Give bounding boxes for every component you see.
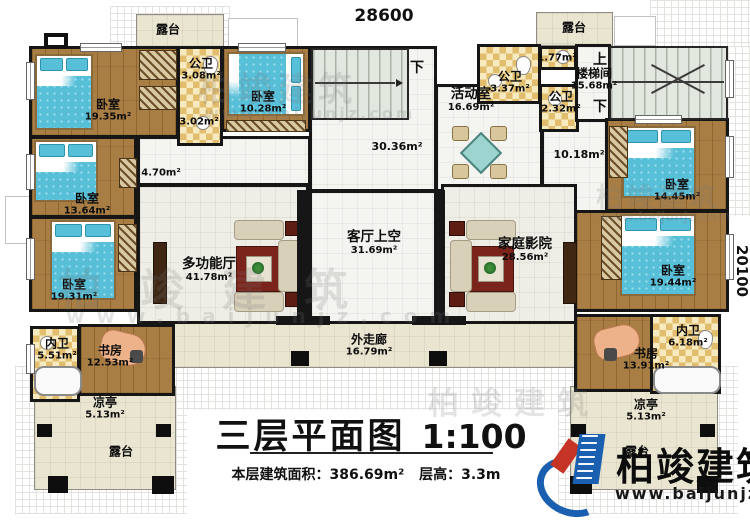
pillow-icon — [66, 58, 89, 71]
label-hall-3036: 30.36m² — [371, 141, 422, 153]
pillow-icon — [660, 218, 692, 231]
pillow-icon — [291, 57, 301, 83]
bed-pillows — [36, 142, 96, 159]
label-pavilion-right: 凉亭5.13m² — [626, 399, 665, 424]
window-right-2 — [725, 136, 734, 178]
bed-pillows — [622, 216, 694, 233]
chair-symbol — [490, 126, 507, 141]
label-bedroom-1028: 卧室10.28m² — [240, 91, 286, 116]
stairs-arrow-icon — [396, 79, 403, 87]
label-corridor: 外走廊16.79m² — [346, 334, 392, 359]
paving-top-right — [650, 0, 750, 46]
label-stair-hall: 楼梯间15.68m² — [571, 68, 617, 93]
roof-outline-top-right — [614, 16, 656, 46]
bed-pillows — [289, 54, 303, 114]
bed-body — [37, 73, 91, 128]
wardrobe-symbol — [139, 50, 177, 80]
title-underline — [250, 452, 493, 454]
tv-wall-left — [153, 242, 167, 304]
label-hall-470: 4.70m² — [141, 167, 180, 178]
label-bedroom-1364: 卧室13.64m² — [64, 193, 110, 218]
wardrobe-symbol — [601, 216, 622, 280]
pillow-icon — [55, 224, 82, 237]
wardrobe-symbol — [139, 86, 177, 110]
dimension-right: 20100 — [733, 245, 750, 297]
bed-pillows — [52, 222, 114, 239]
logo-website-text: www.baijunjz.com — [615, 484, 750, 503]
pillow-icon — [291, 86, 301, 112]
label-home-theater: 家庭影院28.56m² — [498, 237, 552, 263]
column-pavilion-l3 — [48, 476, 68, 493]
wardrobe-symbol — [609, 126, 628, 178]
pillow-icon — [661, 130, 692, 143]
pillow-icon — [68, 144, 94, 157]
label-study-right: 书房13.91m² — [623, 348, 669, 373]
label-bedroom-1935: 卧室19.35m² — [85, 99, 131, 124]
pillow-icon — [85, 224, 112, 237]
pillow-icon — [39, 144, 65, 157]
plan-title-name: 三层平面图 — [215, 417, 405, 457]
window-top-3 — [635, 115, 682, 124]
wardrobe-symbol — [119, 158, 137, 188]
window-top-2 — [238, 43, 286, 52]
label-stairs-down-2: 下 — [593, 96, 607, 116]
label-hall-1018: 10.18m² — [553, 149, 604, 161]
window-right-1 — [725, 60, 734, 98]
paving-bottom-center — [187, 366, 558, 410]
label-terrace-top-right: 露台 — [562, 21, 586, 34]
wall-void-left — [297, 190, 308, 322]
label-activity-room: 活动室16.69m² — [448, 87, 494, 113]
wall-stub-right — [412, 316, 466, 325]
bathtub-icon — [34, 366, 82, 396]
floor-plan-canvas: 露台 露台 卧室19.35m² 公卫3.08m² 3.02m² 卧室10.28m… — [0, 0, 750, 521]
label-bedroom-1445: 卧室14.45m² — [654, 179, 700, 204]
pillow-icon — [40, 58, 63, 71]
sofa-left-top — [234, 220, 284, 240]
column-pavilion-l4 — [152, 476, 174, 494]
sofa-left-bottom — [234, 292, 284, 312]
wardrobe-symbol — [118, 224, 137, 272]
label-bath-337: 公卫3.37m² — [490, 71, 529, 96]
label-terrace-top-left: 露台 — [156, 23, 180, 36]
wardrobe-symbol — [226, 120, 306, 132]
floor-height-value: 3.3m — [461, 467, 500, 483]
plant-icon — [252, 262, 264, 274]
bed-pillows — [624, 128, 694, 145]
label-hall-177: 1.77m² — [537, 52, 576, 63]
chimney-box — [44, 33, 68, 49]
label-bedroom-1931: 卧室19.31m² — [51, 279, 97, 304]
chair-symbol — [452, 126, 469, 141]
dimension-top: 28600 — [354, 6, 413, 26]
plant-icon — [484, 262, 496, 274]
speaker-icon — [449, 221, 465, 236]
chair-symbol — [490, 164, 507, 179]
label-bath-551: 内卫5.51m² — [37, 338, 76, 363]
stairs-top-center — [311, 48, 409, 120]
living-void-room — [309, 190, 441, 324]
column-walkway-2 — [429, 351, 447, 366]
bed-pillows — [37, 56, 91, 73]
bay-window-outline-left — [5, 196, 31, 244]
window-left-1 — [26, 62, 35, 100]
floor-area-label: 本层建筑面积： — [231, 467, 329, 483]
label-bath-308: 公卫3.08m² — [181, 58, 220, 83]
sofa-right-bottom — [466, 292, 516, 312]
label-stairs-down-1: 下 — [410, 57, 424, 77]
wall-void-right — [434, 190, 445, 322]
plan-subtitle: 本层建筑面积：386.69m² 层高：3.3m — [231, 464, 500, 484]
floor-height-label: 层高： — [419, 467, 461, 483]
window-left-2 — [26, 154, 35, 190]
label-living-void: 客厅上空31.69m² — [347, 230, 401, 256]
column-pavilion-l2 — [156, 424, 171, 437]
tv-wall-right — [563, 242, 577, 304]
sofa-right-side — [450, 240, 472, 292]
pillow-icon — [625, 218, 657, 231]
speaker-icon — [449, 292, 465, 307]
label-pavilion-left: 凉亭5.13m² — [85, 397, 124, 422]
office-chair-icon — [604, 348, 617, 361]
label-terrace-bottom-left: 露台 — [109, 445, 133, 458]
window-left-3 — [26, 238, 35, 280]
label-hall-302: 3.02m² — [179, 116, 218, 127]
window-top-1 — [80, 43, 122, 52]
label-bedroom-1944: 卧室19.44m² — [650, 265, 696, 290]
logo-brand-text: 柏竣建筑 — [616, 436, 750, 491]
pillow-icon — [627, 130, 658, 143]
label-bath-618: 内卫6.18m² — [668, 325, 707, 350]
window-left-4 — [26, 344, 35, 374]
stairs-rail-top-center — [315, 82, 395, 84]
plan-title-scale: 1:100 — [421, 417, 526, 456]
label-bath-232: 公卫2.32m² — [541, 91, 580, 116]
label-multi-function-hall: 多功能厅41.78m² — [182, 257, 236, 283]
column-walkway-1 — [291, 351, 309, 366]
floor-area-value: 386.69m² — [329, 467, 404, 483]
chair-symbol — [452, 164, 469, 179]
label-study-left: 书房12.53m² — [87, 345, 133, 370]
column-pavilion-l1 — [37, 424, 52, 437]
wall-stub-left — [276, 316, 330, 325]
